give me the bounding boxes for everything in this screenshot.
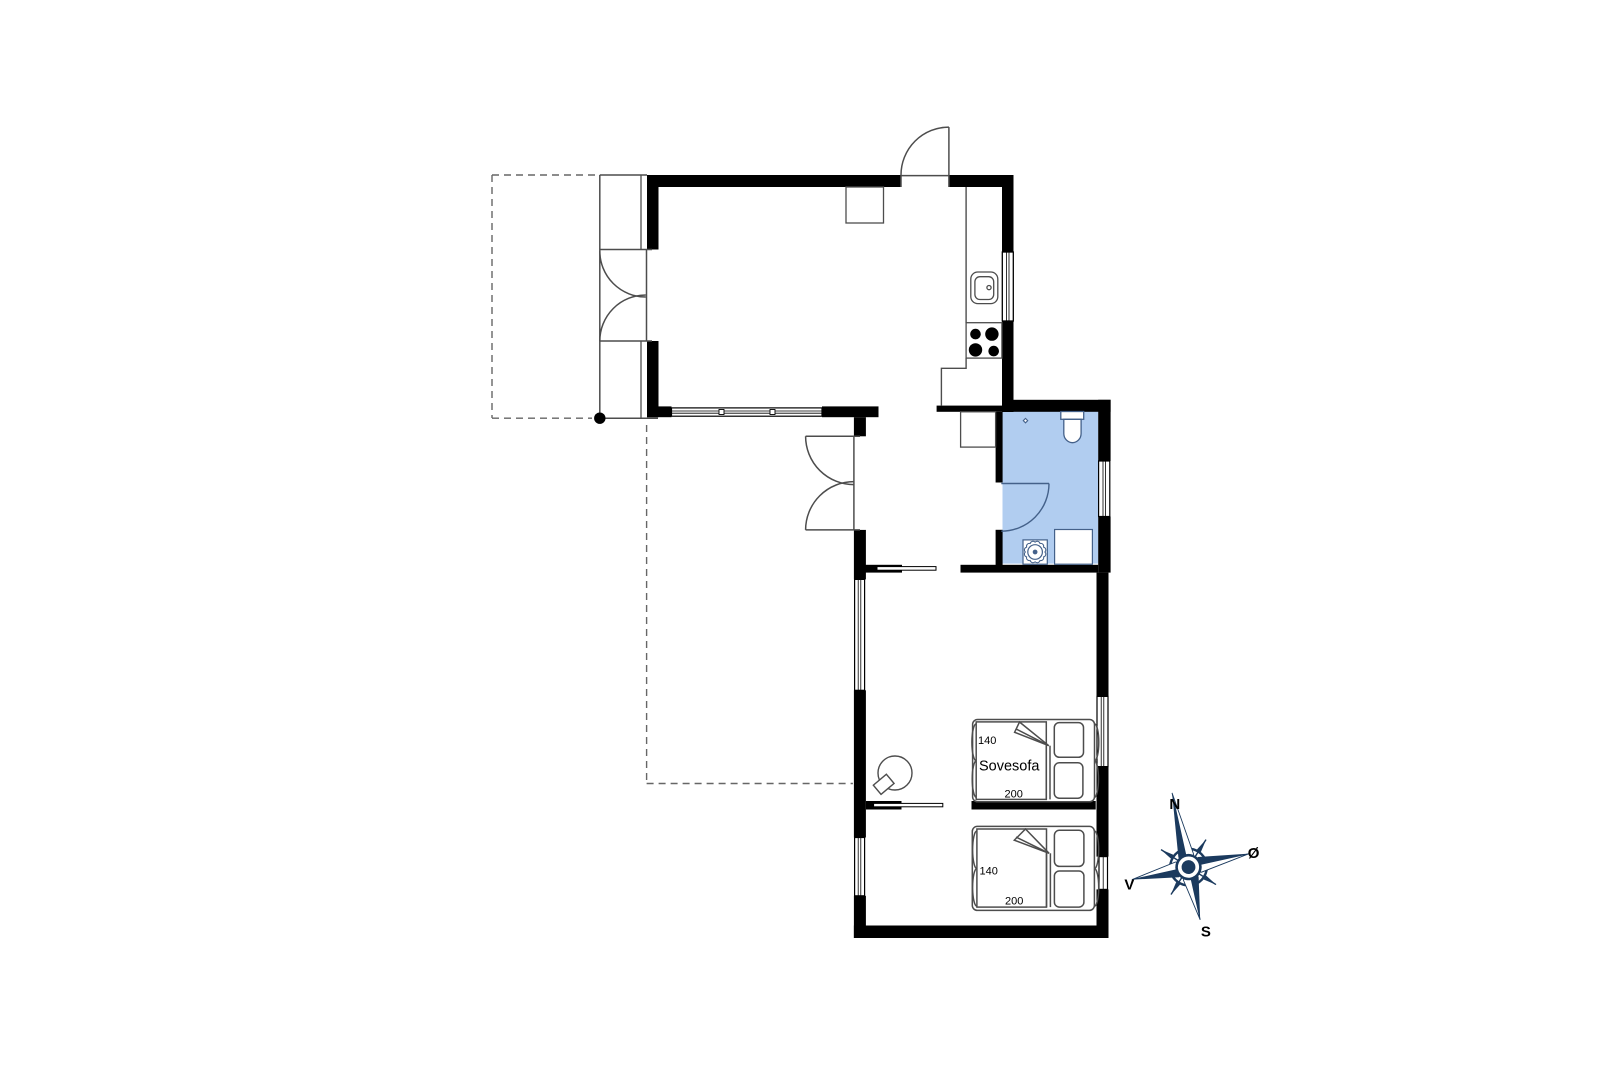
svg-text:140: 140 bbox=[980, 866, 998, 878]
svg-text:Ø: Ø bbox=[1248, 845, 1260, 862]
svg-text:140: 140 bbox=[978, 735, 996, 747]
svg-text:V: V bbox=[1124, 877, 1134, 894]
svg-text:200: 200 bbox=[1005, 896, 1023, 908]
svg-text:Sovesofa: Sovesofa bbox=[979, 759, 1040, 775]
svg-text:S: S bbox=[1201, 924, 1211, 941]
svg-text:200: 200 bbox=[1005, 789, 1023, 801]
svg-text:N: N bbox=[1169, 796, 1180, 813]
